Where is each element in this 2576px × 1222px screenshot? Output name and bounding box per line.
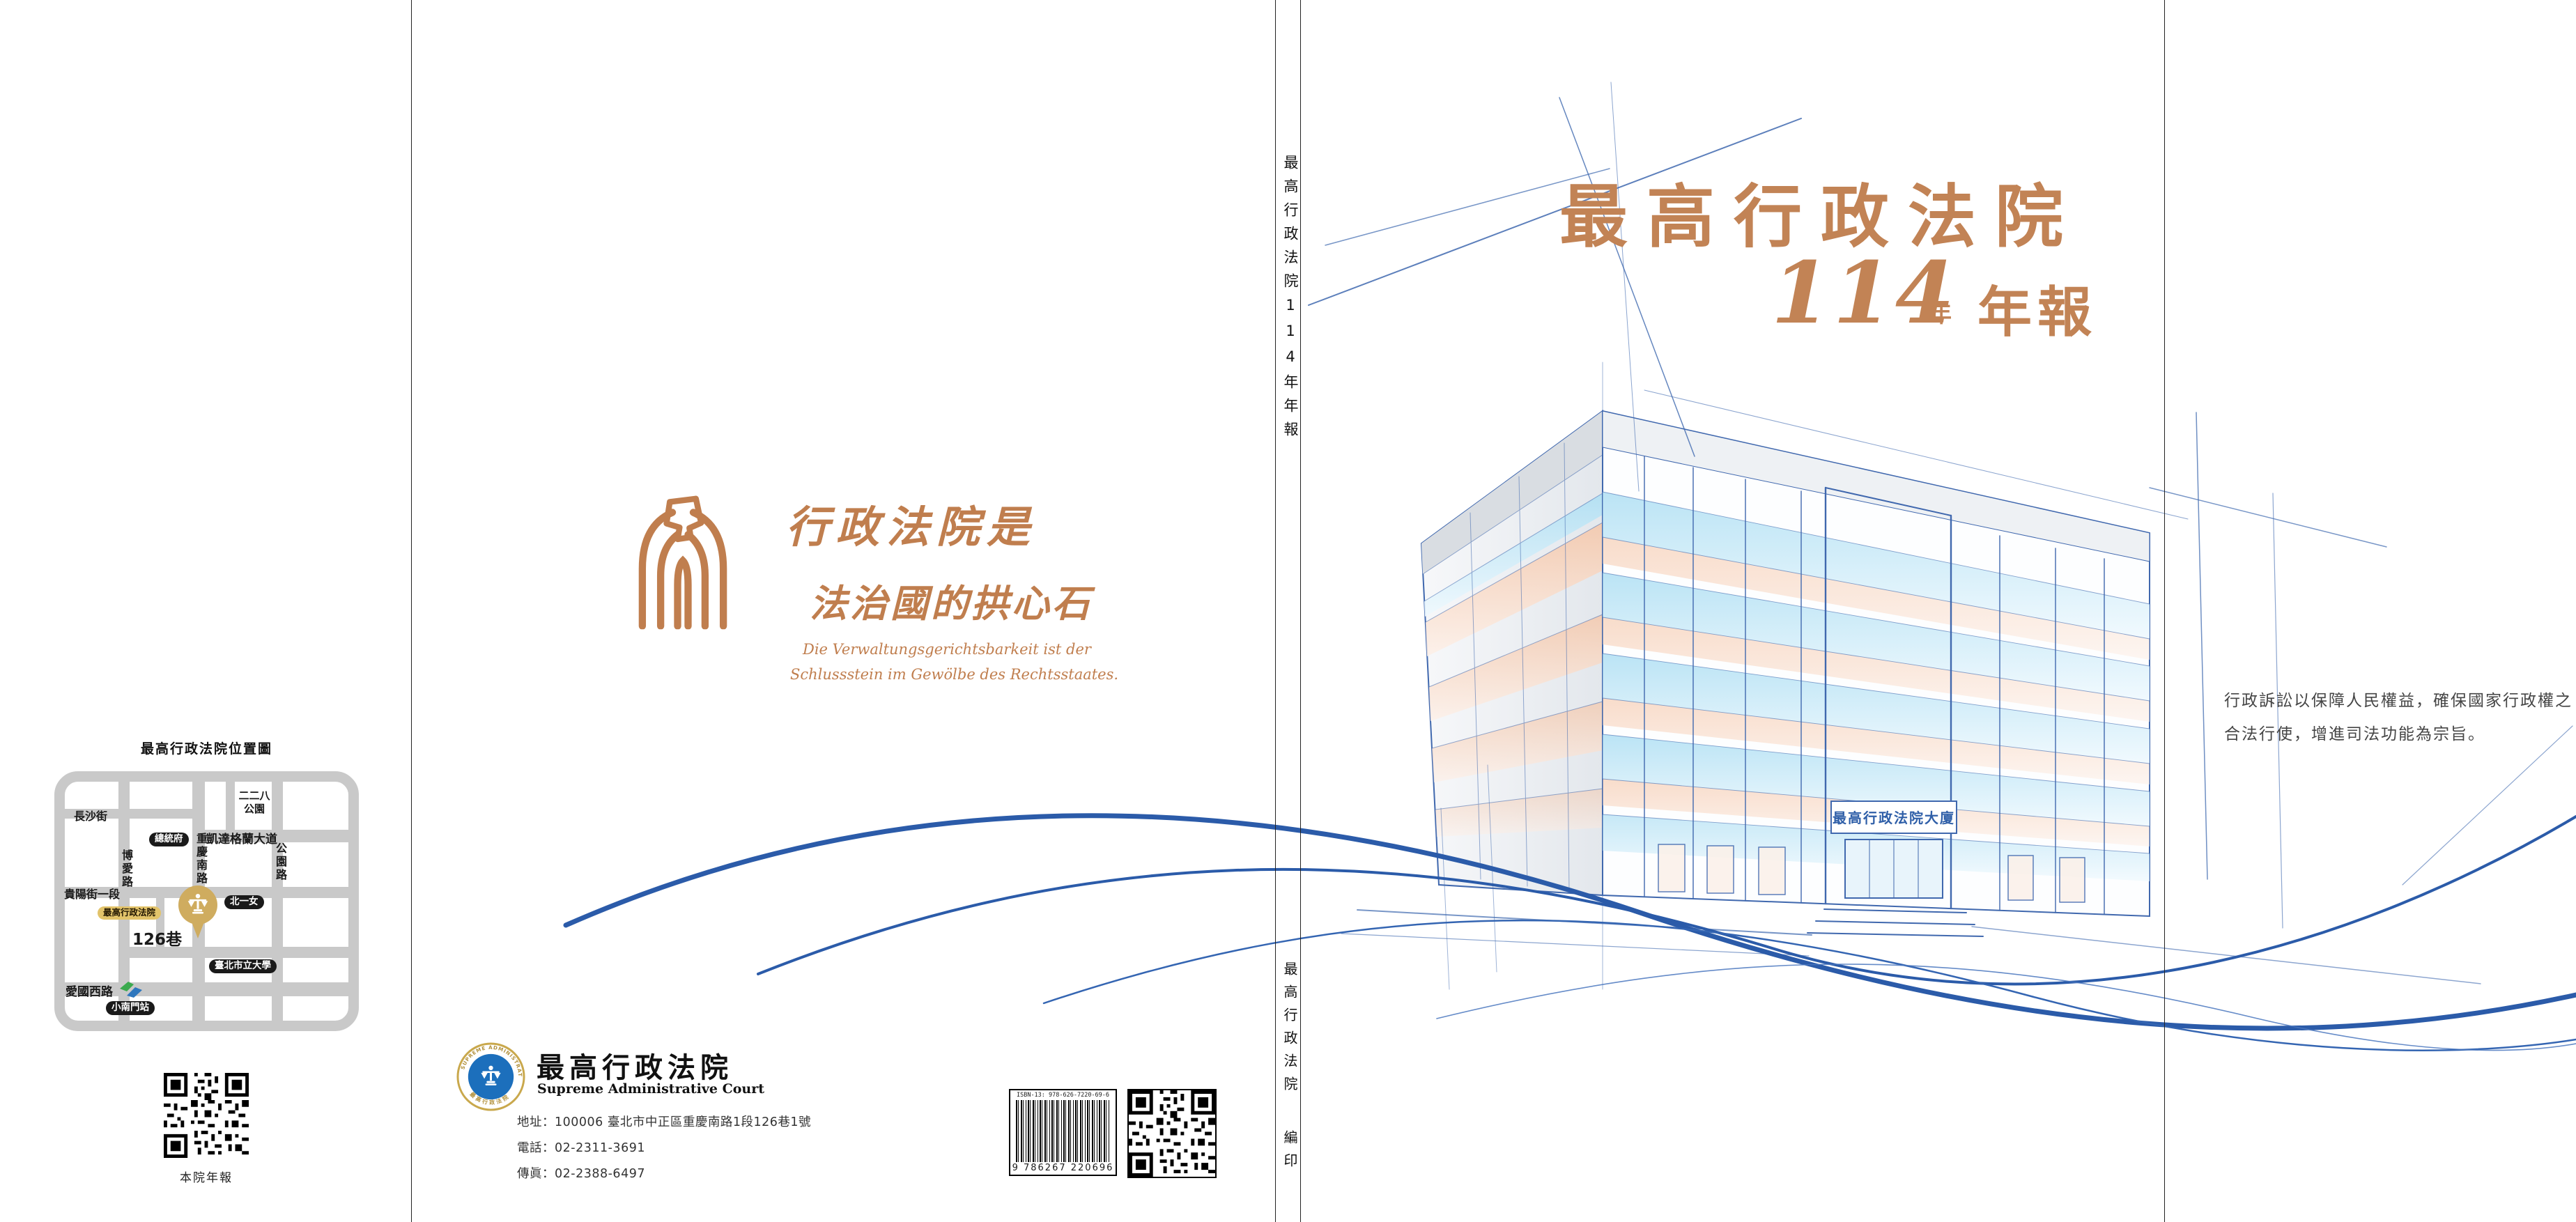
building-plaque: 最高行政法院大廈 <box>1833 810 1955 826</box>
cover-year-unit: 年 <box>1929 295 1952 329</box>
mission-statement-line1: 行政訴訟以保障人民權益，確保國家行政權之 <box>2224 687 2573 711</box>
fax-line: 傳眞：02-2388-6497 <box>517 1164 645 1182</box>
landmark-xiaonanmen-station: 小南門站 <box>106 1001 155 1015</box>
isbn-barcode: ISBN-13: 978-626-7220-69-6 9 786267 2206… <box>1009 1089 1117 1176</box>
court-location-pin-tail <box>191 920 205 938</box>
address-line: 地址：100006 臺北市中正區重慶南路1段126巷1號 <box>517 1113 811 1130</box>
motto-zh-line2: 法治國的拱心石 <box>810 573 1093 628</box>
fold-line-right-flap <box>2164 0 2165 1222</box>
scales-of-justice-icon <box>185 892 211 918</box>
spine-title: 最高行政法院114年年報 <box>1280 155 1301 445</box>
cover-report: 年報 <box>1977 269 2097 347</box>
motto-de-line2: Schlussstein im Gewölbe des Rechtsstaate… <box>790 666 1118 683</box>
mission-statement-line2: 合法行使，增進司法功能為宗旨。 <box>2224 720 2485 744</box>
qr-caption: 本院年報 <box>164 1168 249 1185</box>
annual-report-qr-code <box>164 1073 249 1158</box>
metro-station-icon <box>118 979 145 1000</box>
landmark-university-taipei: 臺北市立大學 <box>209 959 277 973</box>
landmark-228-line1: 二二八 <box>230 789 279 803</box>
street-ketagalan: 凱達格蘭大道 <box>206 829 277 846</box>
street-guiyang: 貴陽街一段 <box>64 885 120 902</box>
map-title: 最高行政法院位置圖 <box>54 738 359 757</box>
keystone-arch-logo <box>631 488 735 631</box>
barcode-digits: 9 786267 220696 <box>1010 1162 1116 1175</box>
landmark-228-line2: 公園 <box>230 803 279 816</box>
fold-line-left-flap <box>411 0 412 1222</box>
street-chongqing: 重慶南路 <box>192 833 209 885</box>
location-map: 長沙街 凱達格蘭大道 博愛路 重慶南路 公園路 貴陽街一段 愛國西路 126巷 … <box>54 771 359 1031</box>
street-changsha: 長沙街 <box>74 807 107 823</box>
court-seal: SUPREME ADMINISTRATIVE COURT 最高行政法院 <box>456 1042 525 1111</box>
motto-de-line1: Die Verwaltungsgerichtsbarkeit ist der <box>803 641 1091 658</box>
landmark-supreme-admin-court: 最高行政法院 <box>98 906 161 920</box>
court-location-pin <box>178 885 217 925</box>
phone-line: 電話：02-2311-3691 <box>517 1138 645 1156</box>
back-cover-qr-code <box>1127 1089 1217 1178</box>
landmark-228-park: 二二八 公園 <box>230 789 279 816</box>
spine-imprint: 編印 <box>1280 1130 1300 1176</box>
spine-publisher: 最高行政法院 <box>1280 961 1300 1099</box>
street-gongyuan: 公園路 <box>272 842 288 882</box>
fold-line-spine-left <box>1275 0 1276 1222</box>
landmark-first-girls-high: 北一女 <box>224 895 264 909</box>
street-boai: 博愛路 <box>118 849 134 889</box>
barcode-bars <box>1016 1100 1110 1162</box>
isbn-label: ISBN-13: 978-626-7220-69-6 <box>1010 1090 1116 1099</box>
book-jacket-spread: 最高行政法院大廈 <box>0 0 2576 1222</box>
street-lane126: 126巷 <box>132 926 182 950</box>
org-name-zh: 最高行政法院 <box>537 1045 733 1085</box>
landmark-presidential-office: 總統府 <box>149 833 189 846</box>
motto-zh-line1: 行政法院是 <box>786 492 1037 555</box>
street-aiguo: 愛國西路 <box>65 982 113 999</box>
org-name-en: Supreme Administrative Court <box>537 1081 764 1097</box>
